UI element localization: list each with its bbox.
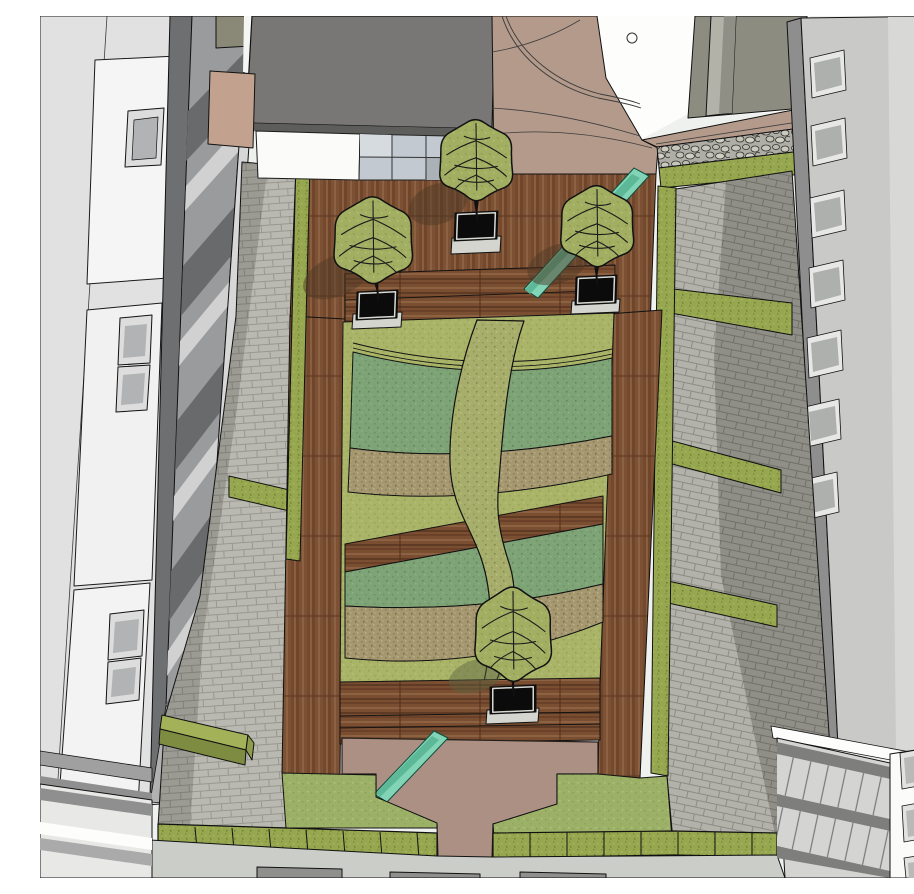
tree-4-trunk-base xyxy=(513,686,514,696)
courtyard-render xyxy=(40,16,914,878)
glass-canopy-light xyxy=(360,134,392,157)
left-window-2-glass xyxy=(123,324,147,358)
tree-1-trunk-base xyxy=(378,291,379,301)
tree-3-trunk-base xyxy=(597,276,598,286)
left-window-1-glass xyxy=(132,117,158,160)
white-wall-center xyxy=(256,131,360,180)
left-window-5-glass xyxy=(111,667,136,697)
tan-balcony-block xyxy=(208,71,255,148)
rooftop-rect-1 xyxy=(257,867,342,878)
hedge-row-right xyxy=(493,831,777,858)
dark-building-roof xyxy=(246,16,495,129)
left-wall-panel-1 xyxy=(87,56,177,284)
render-canvas xyxy=(40,16,914,878)
tree-2-trunk-base xyxy=(477,212,478,222)
left-window-3-glass xyxy=(121,373,145,405)
left-window-4-glass xyxy=(113,619,139,653)
